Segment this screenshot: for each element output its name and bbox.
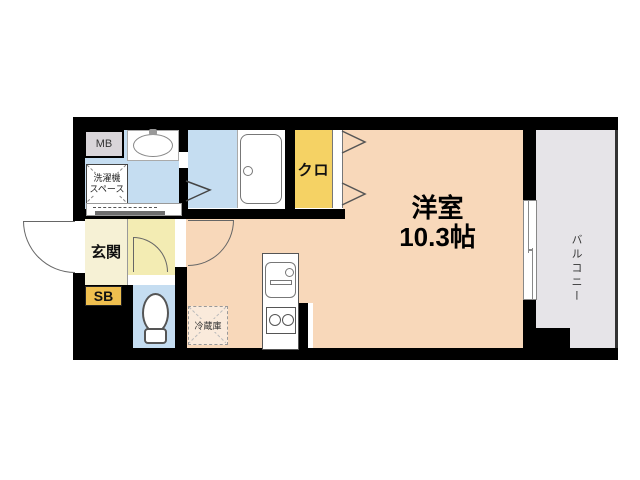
stove-burner-right-icon xyxy=(282,314,294,326)
wash-basin-faucet-icon xyxy=(149,129,157,135)
balcony-window-sash-joint xyxy=(528,249,533,251)
washing-machine-label-line1: 洗濯機 xyxy=(93,173,120,184)
washing-machine-label-line2: スペース xyxy=(90,184,125,195)
entrance-door-arc xyxy=(23,221,75,273)
bath-door-opening xyxy=(179,152,188,168)
entrance-hall-divider xyxy=(127,219,128,285)
bath-folding-door-icon xyxy=(185,179,213,203)
wall-balcony-upper xyxy=(523,117,536,200)
washing-machine-label: 洗濯機 スペース xyxy=(86,164,128,204)
toilet-tank xyxy=(144,328,167,344)
kitchen-faucet-spout xyxy=(270,280,292,285)
main-room-label: 洋室 10.3帖 xyxy=(350,192,525,254)
toilet-door-opening xyxy=(127,275,175,285)
balcony-window xyxy=(523,200,537,300)
sliding-door-track xyxy=(93,207,157,208)
entrance-label: 玄関 xyxy=(85,218,127,285)
balcony-window-sash-left xyxy=(528,201,529,253)
kitchen-faucet-icon xyxy=(285,268,294,277)
balcony-window-sash-right xyxy=(532,248,533,299)
main-room-name: 洋室 xyxy=(411,194,463,223)
stove-burner-left-icon xyxy=(269,314,281,326)
wash-basin-bowl xyxy=(133,134,173,157)
balcony-outer-edge xyxy=(615,130,618,348)
wall-balcony-lower xyxy=(523,300,536,358)
balcony-label: バルコニー xyxy=(562,196,590,341)
meter-box-label: MB xyxy=(84,130,124,158)
main-room-size: 10.3帖 xyxy=(399,223,476,252)
wall-bottom xyxy=(73,348,618,360)
kitchen-stub-gap xyxy=(308,303,313,348)
main-room-door-opening xyxy=(176,219,186,267)
shoe-box-label: SB xyxy=(85,286,122,306)
toilet-bowl xyxy=(142,293,169,333)
floor-plan: MB 洗濯機 スペース 冷蔵庫 xyxy=(0,0,640,480)
sliding-door xyxy=(86,203,182,216)
refrigerator-label: 冷蔵庫 xyxy=(188,306,228,345)
wall-washroom-bath-upper xyxy=(179,130,188,152)
refrigerator-label-text: 冷蔵庫 xyxy=(194,319,221,332)
bathtub-drain-icon xyxy=(243,166,253,176)
sliding-door-panel xyxy=(95,211,165,215)
closet-label: クロ xyxy=(293,130,334,208)
wall-hall-main xyxy=(175,267,187,348)
